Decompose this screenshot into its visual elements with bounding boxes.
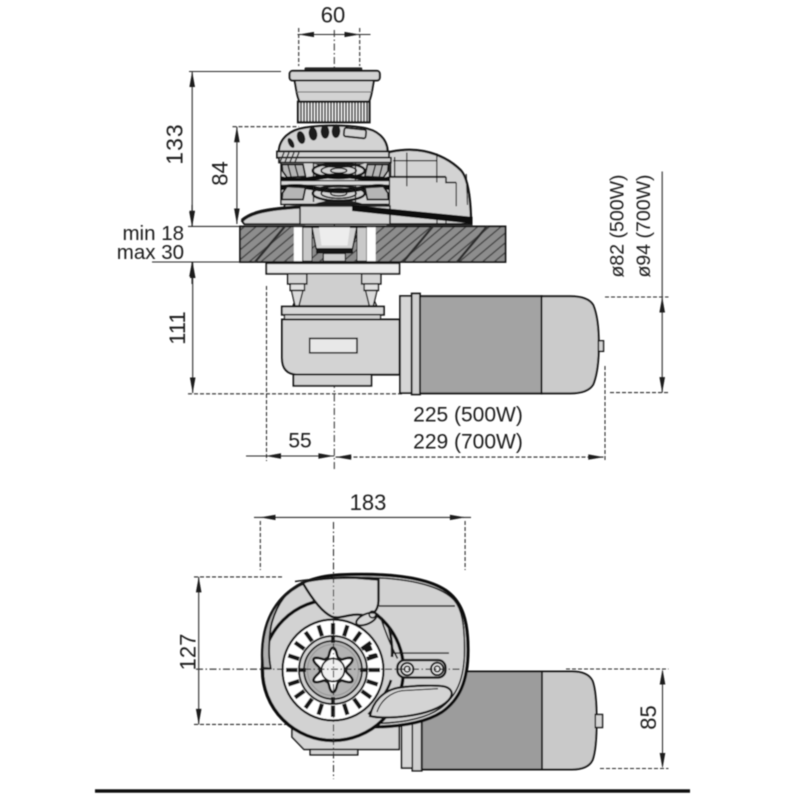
svg-text:229 (700W): 229 (700W) (413, 431, 523, 454)
svg-text:max 30: max 30 (117, 241, 184, 264)
svg-text:183: 183 (350, 490, 387, 515)
svg-text:133: 133 (162, 123, 188, 164)
svg-text:225 (500W): 225 (500W) (413, 404, 523, 427)
svg-text:111: 111 (165, 311, 190, 344)
svg-text:127: 127 (176, 634, 201, 671)
svg-text:85: 85 (636, 705, 661, 729)
svg-text:60: 60 (321, 3, 345, 28)
svg-text:ø82 (500W): ø82 (500W) (607, 175, 629, 278)
svg-text:55: 55 (288, 430, 311, 453)
svg-text:84: 84 (208, 161, 233, 185)
svg-text:ø94 (700W): ø94 (700W) (633, 175, 655, 278)
